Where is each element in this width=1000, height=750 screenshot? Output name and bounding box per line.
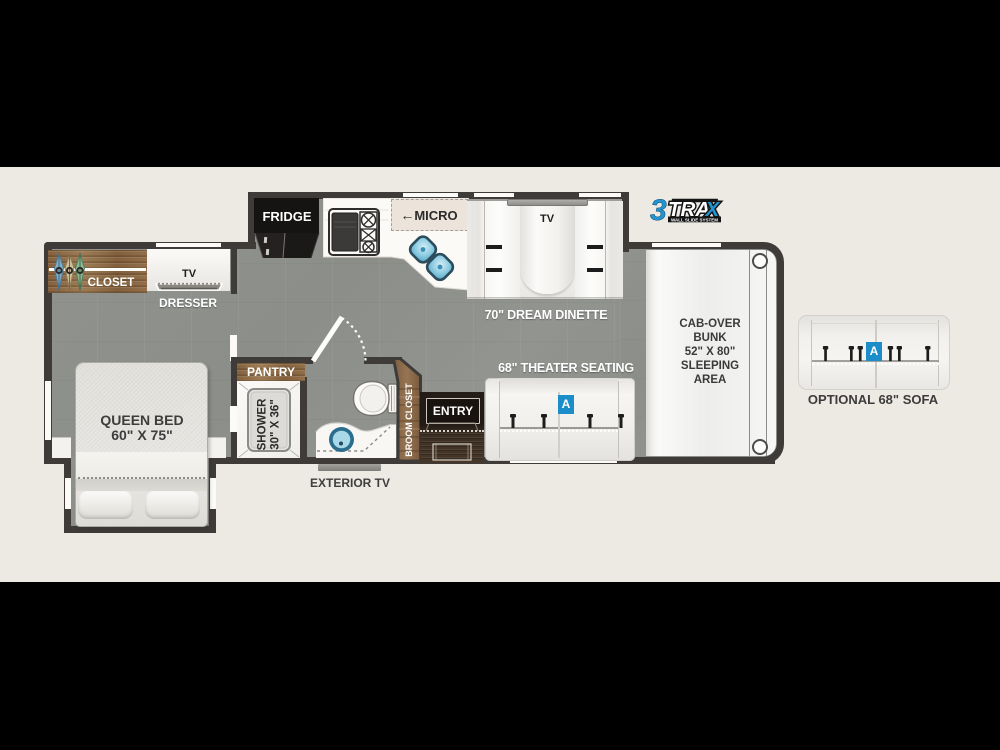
svg-text:3: 3 bbox=[650, 194, 667, 227]
svg-text:TRA: TRA bbox=[668, 198, 710, 221]
svg-text:X: X bbox=[705, 198, 721, 221]
